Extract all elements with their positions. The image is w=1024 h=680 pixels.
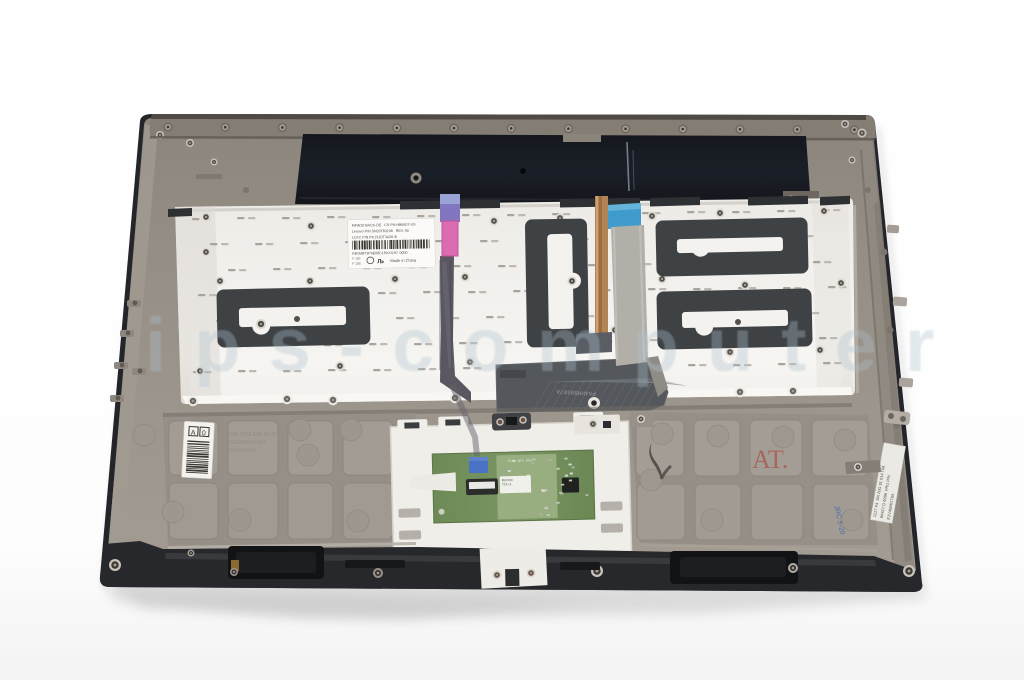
svg-text:A: A — [191, 430, 196, 437]
svg-text:SUS 2P52 G42 4C 07: SUS 2P52 G42 4C 07 — [228, 432, 277, 438]
svg-text:LCFC P/N PK131DT3A26-B: LCFC P/N PK131DT3A26-B — [352, 235, 398, 240]
svg-text:0: 0 — [202, 430, 206, 437]
svg-text:Made in China: Made in China — [390, 258, 417, 263]
svg-text:Љ: Љ — [377, 259, 384, 265]
svg-text:TP4A NPX 8PU: TP4A NPX 8PU — [507, 460, 532, 465]
svg-text:AT.: AT. — [752, 445, 788, 474]
svg-text:Y13 L1: Y13 L1 — [502, 482, 512, 486]
svg-text:ZHANJI8NG: ZHANJI8NG — [228, 448, 256, 454]
svg-text:F 100: F 100 — [352, 257, 360, 261]
svg-text:8SSM20M37854: 8SSM20M37854 — [228, 440, 265, 446]
svg-text:ips-computer: ips-computer — [145, 303, 962, 388]
svg-text:F 108: F 108 — [352, 262, 360, 266]
